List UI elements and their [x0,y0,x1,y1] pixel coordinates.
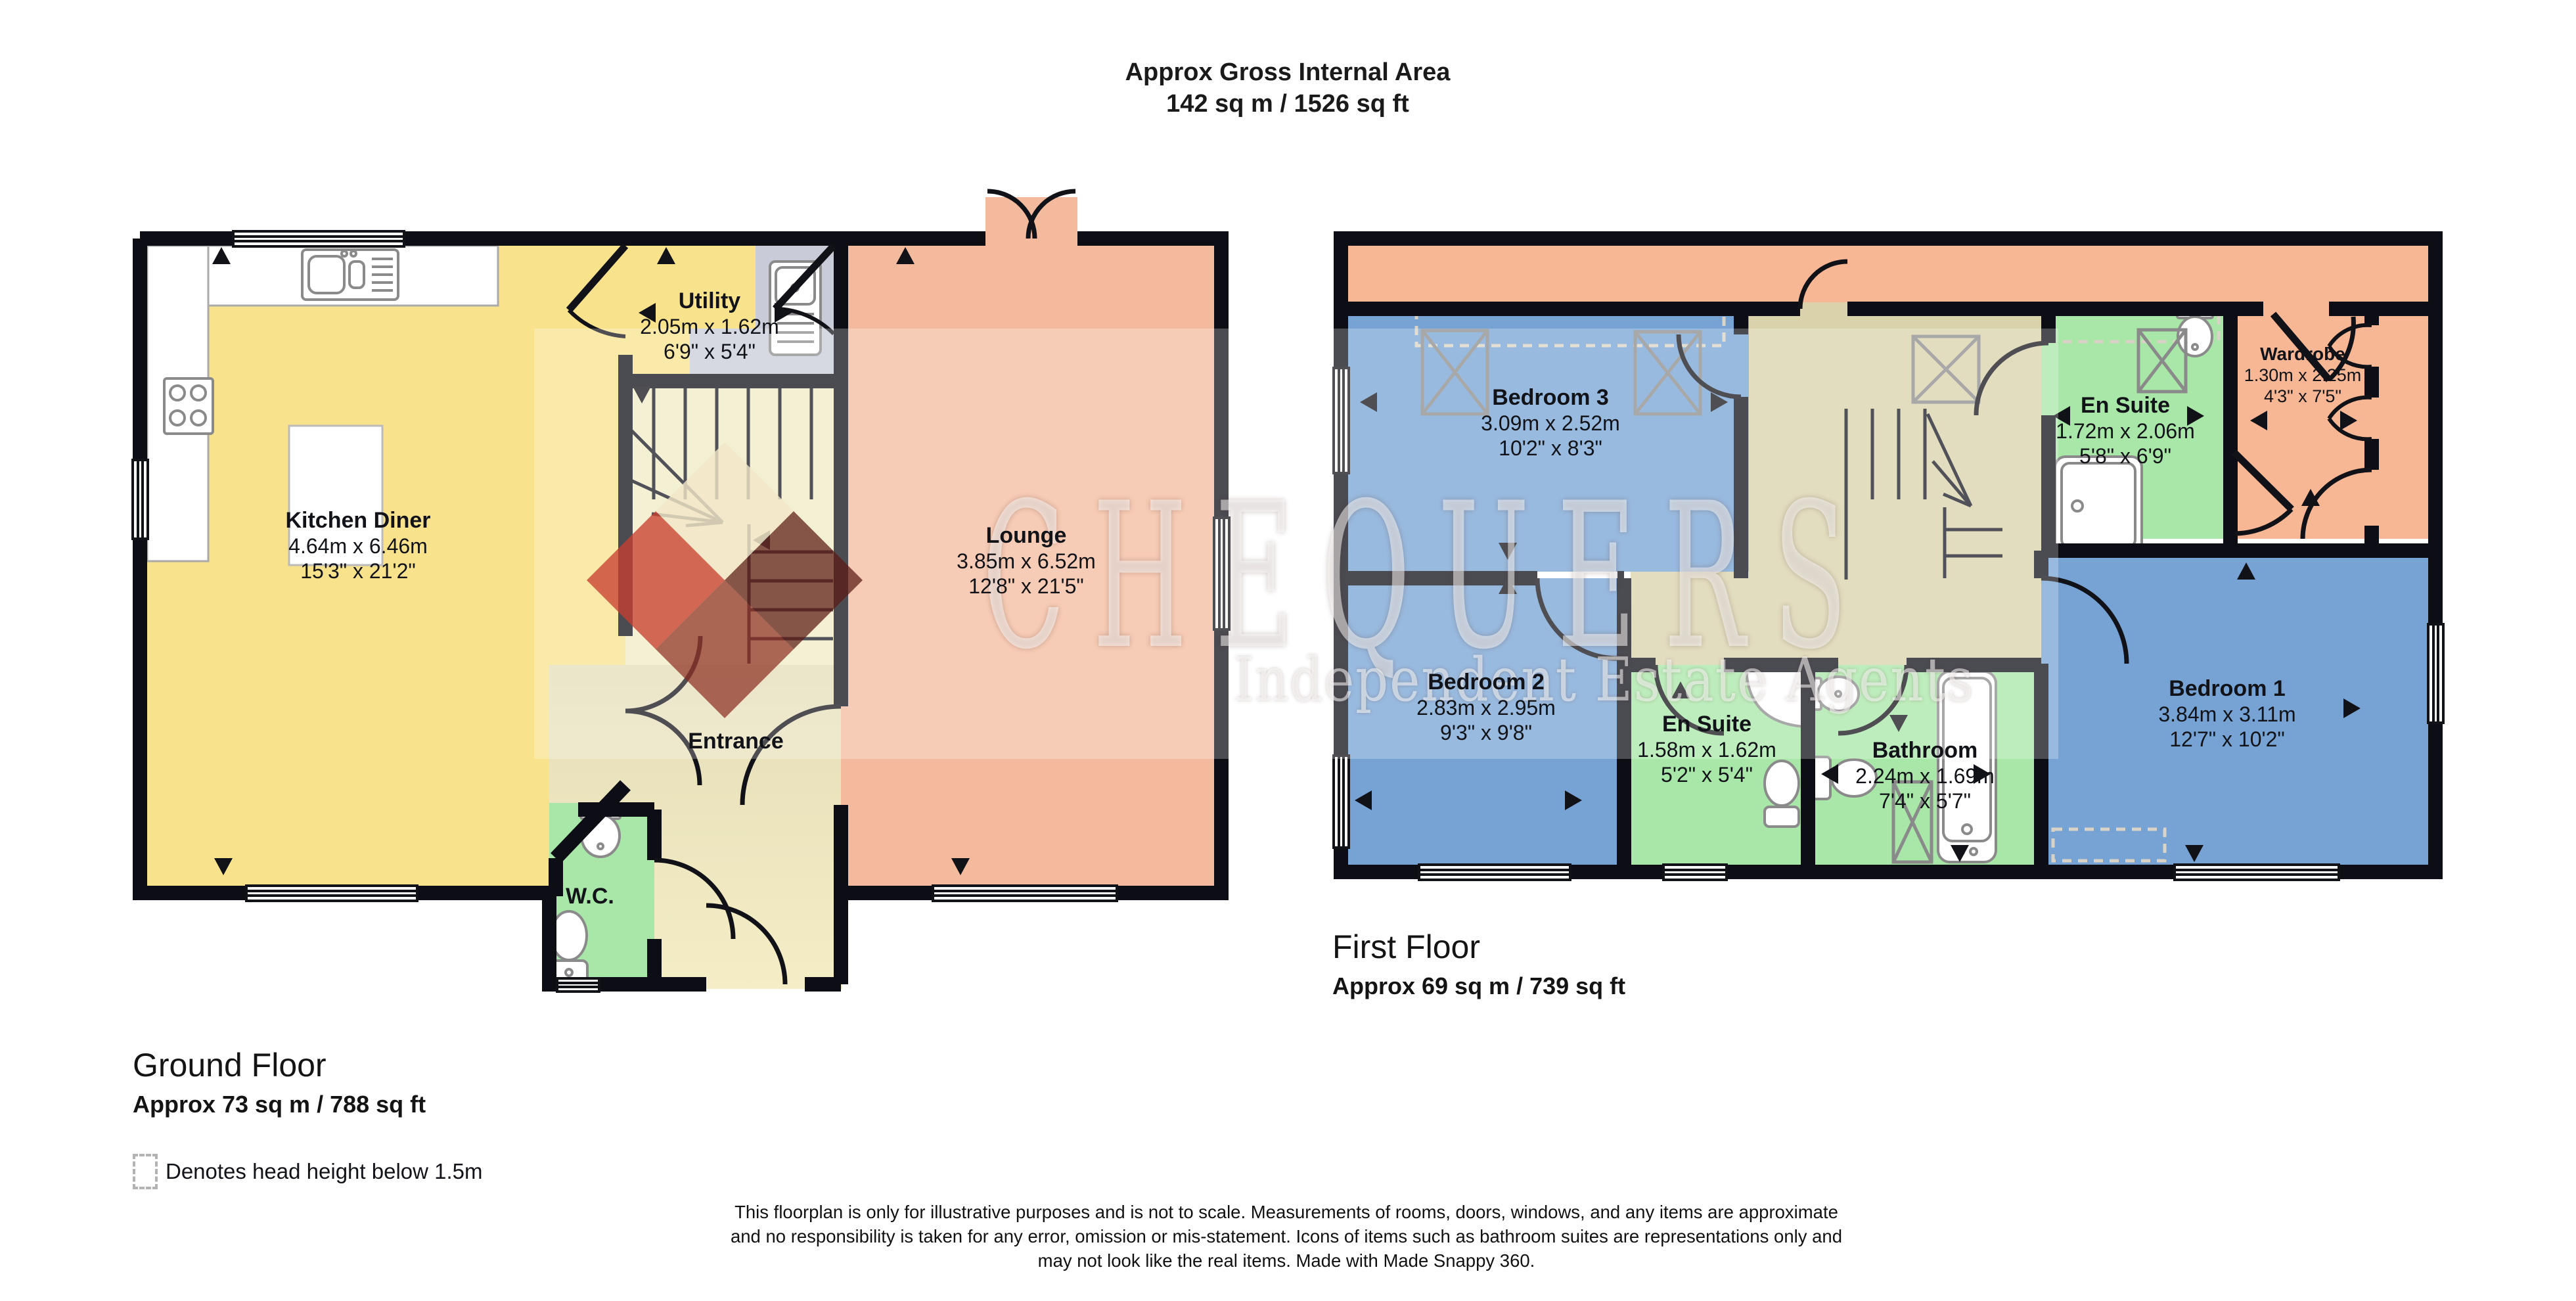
title-line2: 142 sq m / 1526 sq ft [1125,88,1451,120]
first-floor-area: Approx 69 sq m / 739 sq ft [1332,972,1625,1000]
first-floor-title: First Floor [1332,928,1480,966]
wardrobe-label: Wardrobe 1.30m x 2.25m 4'3" x 7'5" [2244,343,2362,407]
utility-label: Utility 2.05m x 1.62m 6'9" x 5'4" [640,288,779,364]
head-height-legend-label: Denotes head height below 1.5m [166,1159,483,1184]
title-line1: Approx Gross Internal Area [1125,57,1451,88]
gross-internal-area-title: Approx Gross Internal Area 142 sq m / 15… [1125,57,1451,120]
disclaimer-line1: This floorplan is only for illustrative … [531,1200,2042,1224]
lounge-label: Lounge 3.85m x 6.52m 12'8" x 21'5" [957,522,1096,599]
bedroom3-label: Bedroom 3 3.09m x 2.52m 10'2" x 8'3" [1481,384,1620,461]
hob-icon [164,378,213,434]
stairwell-floor [625,385,834,665]
ensuite-bottom-label: En Suite 1.58m x 1.62m 5'2" x 5'4" [1637,711,1776,787]
entrance-label: Entrance [688,728,784,754]
kitchen-diner-label: Kitchen Diner 4.64m x 6.46m 15'3" x 21'2… [285,507,430,583]
wc-label: W.C. [566,883,614,909]
disclaimer-line2: and no responsibility is taken for any e… [531,1224,2042,1248]
head-height-legend-icon [133,1154,158,1189]
shower-tray-icon [2055,457,2142,554]
eaves-strip-floor [1348,246,2428,309]
disclaimer-text: This floorplan is only for illustrative … [531,1200,2042,1273]
bedroom1-label: Bedroom 1 3.84m x 3.11m 12'7" x 10'2" [2158,675,2295,752]
bathroom-label: Bathroom 2.24m x 1.69m 7'4" x 5'7" [1855,737,1995,813]
kitchen-sink-icon [302,250,398,300]
ground-floor-title: Ground Floor [133,1046,327,1084]
bedroom2-label: Bedroom 2 2.83m x 2.95m 9'3" x 9'8" [1416,669,1556,745]
disclaimer-line3: may not look like the real items. Made w… [531,1248,2042,1273]
ground-floor-area: Approx 73 sq m / 788 sq ft [133,1091,426,1118]
ensuite-top-label: En Suite 1.72m x 2.06m 5'8" x 6'9" [2056,392,2195,468]
